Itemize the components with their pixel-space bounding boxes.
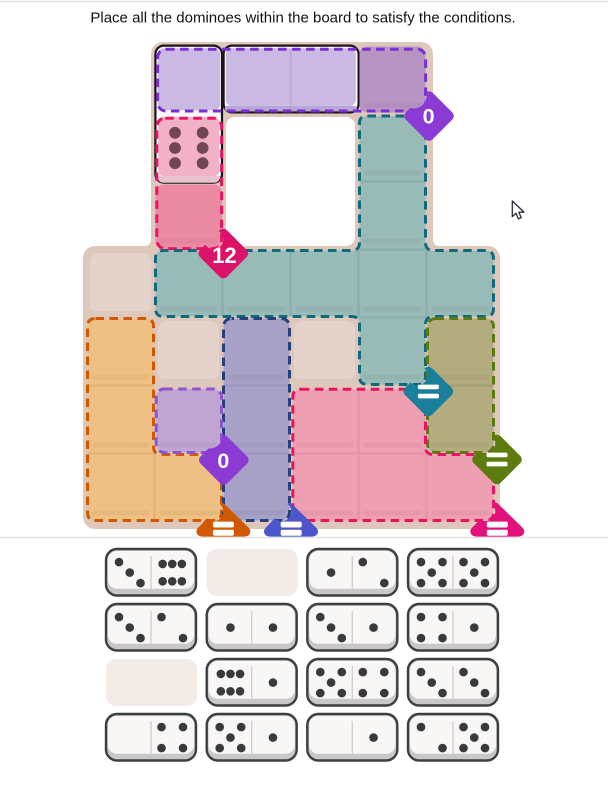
svg-text:Place all the dominoes within: Place all the dominoes within the board … [90, 10, 515, 27]
svg-text:0: 0 [423, 105, 435, 129]
svg-text:0: 0 [217, 449, 229, 473]
svg-text:12: 12 [212, 243, 236, 268]
